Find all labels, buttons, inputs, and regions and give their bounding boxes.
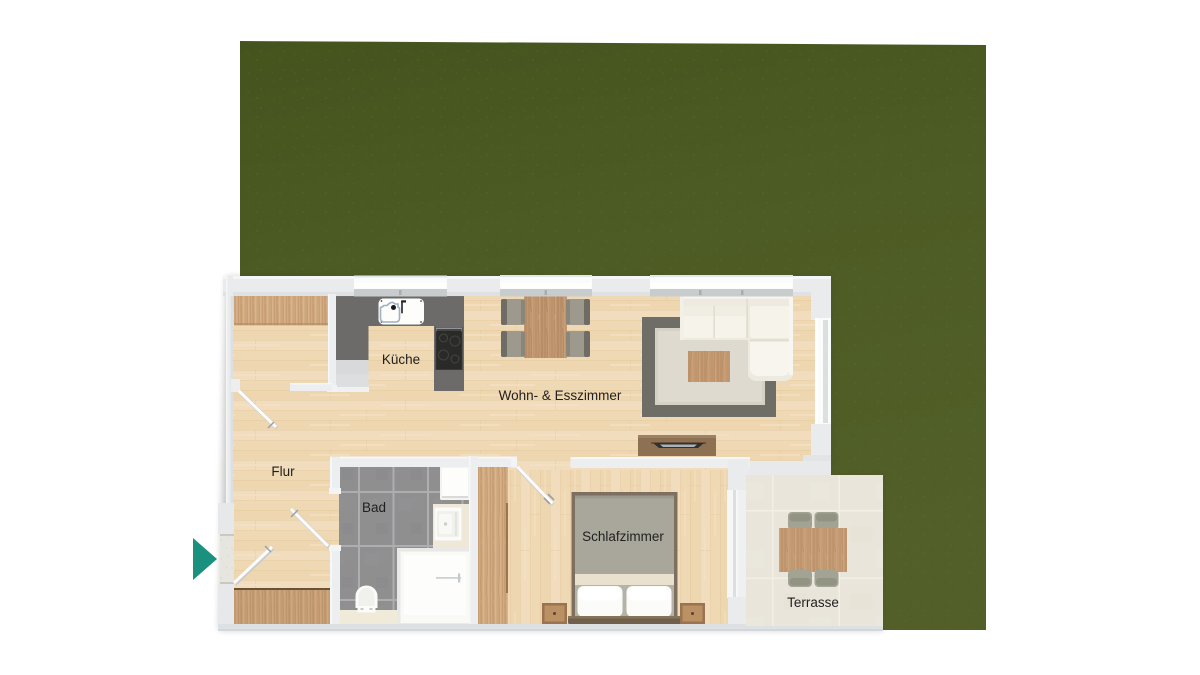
- svg-text:Schlafzimmer: Schlafzimmer: [582, 529, 664, 544]
- svg-text:Küche: Küche: [382, 352, 420, 367]
- svg-text:Wohn- & Esszimmer: Wohn- & Esszimmer: [499, 388, 622, 403]
- svg-text:Terrasse: Terrasse: [787, 595, 839, 610]
- svg-text:Bad: Bad: [362, 500, 386, 515]
- svg-text:Flur: Flur: [271, 464, 295, 479]
